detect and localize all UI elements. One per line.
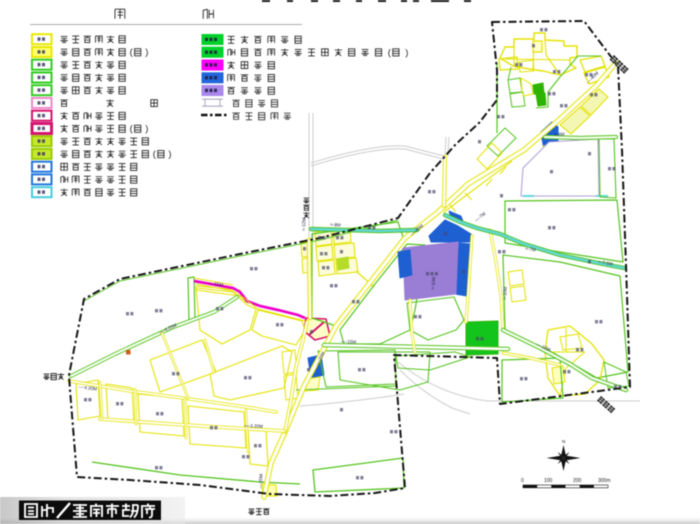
svg-text:200: 200 xyxy=(573,478,582,484)
svg-text:): ) xyxy=(405,47,408,58)
svg-text:—-20M: —-20M xyxy=(258,474,264,489)
svg-text:0: 0 xyxy=(521,478,524,484)
svg-text:=-8M: =-8M xyxy=(330,222,341,228)
svg-text:): ) xyxy=(168,148,171,159)
svg-text:N: N xyxy=(562,439,565,444)
svg-text:): ) xyxy=(145,123,148,134)
svg-text:300m: 300m xyxy=(598,478,611,484)
svg-text:): ) xyxy=(145,46,148,57)
svg-text:=-10M: =-10M xyxy=(502,286,508,300)
svg-text:—-3.20M: —-3.20M xyxy=(244,423,263,429)
svg-text:=-12M: =-12M xyxy=(301,218,306,231)
svg-text:—-15M: —-15M xyxy=(341,339,356,345)
svg-text:=-6M: =-6M xyxy=(554,132,565,137)
svg-text:100: 100 xyxy=(544,478,553,484)
